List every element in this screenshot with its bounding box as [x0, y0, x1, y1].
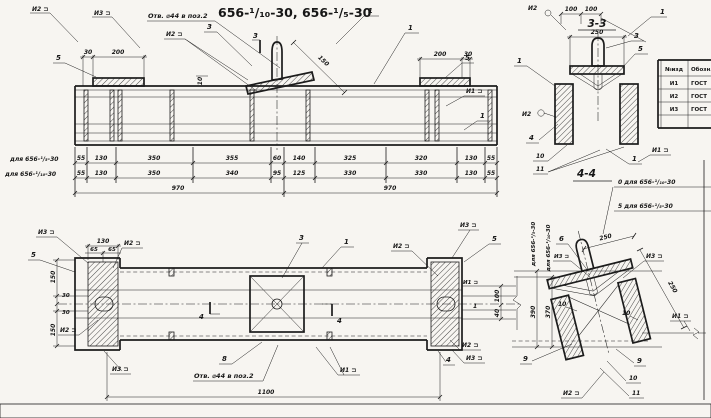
- dim-370: 370: [545, 306, 552, 319]
- top-annotations: И2 ⊐ И3 ⊐ Отв. ⌀44 в поз.2 656-¹/₁₀-30, …: [30, 5, 490, 130]
- dim-200: 200: [434, 51, 447, 58]
- dim-value: 355: [226, 155, 239, 162]
- stiffeners: [84, 90, 492, 141]
- callout-1: 1: [344, 238, 349, 246]
- callout-1: 1: [632, 155, 637, 163]
- table-row-pos: И1: [670, 81, 679, 87]
- marker-i2: И2 ⊐: [60, 327, 76, 334]
- left-channel-wall: [555, 84, 573, 144]
- dim-30: 30: [84, 49, 92, 56]
- dim-100: 100: [494, 290, 501, 303]
- marker-i3: И3 ⊐: [460, 222, 476, 229]
- tilted-channel: [536, 220, 651, 365]
- marker-i3: И3 ⊐: [554, 254, 569, 260]
- marker-i3: И3 ⊐: [112, 366, 128, 373]
- marker-i2: И2 ⊐: [124, 240, 140, 247]
- callout-1: 1: [408, 24, 413, 32]
- dim-130: 130: [97, 238, 110, 245]
- dim-10: 10: [197, 77, 204, 85]
- callout-1: 1: [368, 7, 373, 15]
- marker-i2-plain: И2: [522, 111, 531, 118]
- dim-value: 350: [148, 155, 161, 162]
- section-4-4-label: 4-4: [576, 168, 596, 180]
- marker-i3: И3 ⊐: [94, 10, 110, 17]
- dim-value: 320: [415, 155, 428, 162]
- variant-note-10: 0 для 656-¹/₁₀-30: [618, 179, 675, 186]
- dim-30: 30: [62, 310, 70, 316]
- dim-value: 60: [273, 155, 281, 162]
- dim-200: 200: [112, 49, 125, 56]
- dim-40: 40: [494, 309, 501, 317]
- callout-6: 6: [559, 235, 564, 243]
- hole-note-top: Отв. ⌀44 в поз.2: [148, 12, 208, 20]
- callout-1: 1: [660, 8, 665, 16]
- callout-3: 3: [207, 23, 212, 31]
- table-row-pos: И3: [670, 107, 679, 113]
- row1-label: для 656-¹/₅-30: [9, 156, 58, 163]
- callout-8: 8: [222, 355, 227, 363]
- marker-i3: И3 ⊐: [646, 253, 662, 260]
- callout-1: 1: [473, 303, 477, 310]
- dim-value: 55: [77, 155, 85, 162]
- marker-i2: И2 ⊐: [563, 390, 579, 397]
- dim-1100: 1100: [258, 389, 275, 396]
- right-top-plate: [420, 78, 470, 86]
- total-970: 970: [384, 185, 397, 192]
- dim-value: 55: [487, 170, 495, 177]
- dim-value: 130: [95, 155, 108, 162]
- marker-i2: И2 ⊐: [462, 342, 478, 349]
- dim-390: 390: [530, 306, 537, 319]
- callout-10: 10: [536, 153, 544, 160]
- marker-i3: И3 ⊐: [466, 355, 482, 362]
- dim-value: 130: [465, 170, 478, 177]
- row2-values: 55 130 350 340 95 125 330 330 130 55: [77, 170, 495, 177]
- dim-value: 325: [344, 155, 357, 162]
- dim-value: 350: [148, 170, 161, 177]
- dim-value: 130: [95, 170, 108, 177]
- right-channel-wall: [620, 84, 638, 144]
- variant-vert-5: для 656-¹/₅-30: [530, 222, 537, 268]
- callout-5: 5: [31, 251, 36, 259]
- table-col2-header: Обозн.: [691, 66, 711, 73]
- hole-note-bottom: Отв. ⌀44 в поз.2: [194, 372, 254, 380]
- left-top-plate: [93, 78, 144, 86]
- parts-table: №изд Обозн. И1 ГОСТ И2 ГОСТ И3 ГОСТ И1 ⊐: [638, 60, 711, 162]
- bearing-plate: [570, 66, 624, 74]
- dim-250: 250: [591, 29, 604, 36]
- section-cut-4: 4: [337, 317, 342, 325]
- dim-150: 150: [50, 324, 57, 337]
- table-row-doc: ГОСТ: [691, 81, 707, 87]
- row2-label: для 656-¹/₁₀-30: [4, 171, 56, 178]
- dim-65: 65: [108, 247, 116, 253]
- dim-chain: для 656-¹/₅-30 для 656-¹/₁₀-30 55 130 35…: [4, 147, 499, 197]
- dim-value: 95: [273, 170, 281, 177]
- table-row-doc: ГОСТ: [691, 94, 707, 100]
- callout-1: 1: [480, 112, 485, 120]
- table-col1-header: №изд: [664, 66, 684, 73]
- marker-i1: И1 ⊐: [463, 280, 478, 286]
- marker-i3: И3 ⊐: [38, 229, 54, 236]
- scan-bottom-band: [0, 404, 711, 418]
- callout-5: 5: [465, 54, 470, 62]
- drawing-sheet: 30 200 200 30 150 10 3 И2 ⊐ И3 ⊐ Отв. ⌀4…: [0, 0, 711, 418]
- section-4-4: 0 для 656-¹/₁₀-30 5 для 656-¹/₅-30 250 2…: [512, 179, 711, 398]
- extension-lines: [75, 147, 497, 197]
- dim-65: 65: [90, 247, 98, 253]
- callout-9: 9: [523, 355, 528, 363]
- callout-4: 4: [446, 356, 451, 364]
- table-row-pos: И2: [670, 94, 679, 100]
- title: 656-¹/₁₀-30, 656-¹/₅-30: [218, 5, 372, 20]
- dim-value: 125: [293, 170, 306, 177]
- section-cut-4: 4: [199, 313, 204, 321]
- section-cut-3: 3: [253, 32, 258, 40]
- dim-30: 30: [62, 293, 70, 299]
- variant-vert-10: для 656-¹/₁₀-30: [545, 224, 552, 272]
- callout-1: 1: [517, 57, 522, 65]
- dim-100: 100: [565, 6, 578, 13]
- marker-i2: И2 ⊐: [393, 243, 409, 250]
- left-end-plate: [88, 262, 118, 346]
- marker-i2: И2 ⊐: [32, 6, 48, 13]
- dim-value: 55: [487, 155, 495, 162]
- plan-view: 4 4 100 40 И1 ⊐ 1: [58, 258, 521, 350]
- dim-value: 330: [415, 170, 428, 177]
- callout-3: 3: [634, 32, 639, 40]
- callout-5: 5: [56, 54, 61, 62]
- dim-250: 250: [666, 280, 678, 294]
- marker-i1: И1 ⊐: [652, 147, 668, 154]
- elevation-view: 30 200 200 30 150 10 3: [75, 32, 497, 150]
- right-extension: 100 40 И1 ⊐ 1: [462, 276, 521, 330]
- dim-value: 340: [226, 170, 239, 177]
- callout-3: 3: [299, 234, 304, 242]
- callout-10: 10: [558, 301, 566, 308]
- callout-4: 4: [529, 134, 534, 142]
- row1-values: 55 130 350 355 60 140 325 320 130 55: [77, 155, 495, 162]
- total-970: 970: [172, 185, 185, 192]
- dim-100: 100: [585, 6, 598, 13]
- dim-250: 250: [599, 233, 613, 243]
- section-3-3: И2 100 100 1 3-3 250 1 3 5 И2 4 10: [514, 5, 667, 181]
- dim-150: 150: [50, 271, 57, 284]
- dim-value: 330: [344, 170, 357, 177]
- marker-i1: И1 ⊐: [672, 313, 688, 320]
- dim-value: 140: [293, 155, 306, 162]
- dim-value: 55: [77, 170, 85, 177]
- callout-11: 11: [536, 166, 544, 173]
- plan-left-chain: 150 30 30 150: [50, 258, 88, 348]
- marker-i1: И1 ⊐: [340, 367, 356, 374]
- drawing-canvas: 30 200 200 30 150 10 3 И2 ⊐ И3 ⊐ Отв. ⌀4…: [0, 0, 711, 418]
- dim-150: 150: [316, 54, 330, 68]
- table-row-doc: ГОСТ: [691, 107, 707, 113]
- callout-10: 10: [629, 375, 637, 382]
- callout-5: 5: [492, 235, 497, 243]
- callout-11: 11: [632, 390, 640, 397]
- callout-5: 5: [638, 45, 643, 53]
- callout-9: 9: [637, 357, 642, 365]
- dim-value: 130: [465, 155, 478, 162]
- variant-note-5: 5 для 656-¹/₅-30: [618, 203, 673, 210]
- marker-i2-plain: И2: [528, 5, 537, 12]
- marker-i2: И2 ⊐: [166, 31, 182, 38]
- marker-i1: И1 ⊐: [466, 88, 482, 95]
- callout-10: 10: [622, 310, 630, 317]
